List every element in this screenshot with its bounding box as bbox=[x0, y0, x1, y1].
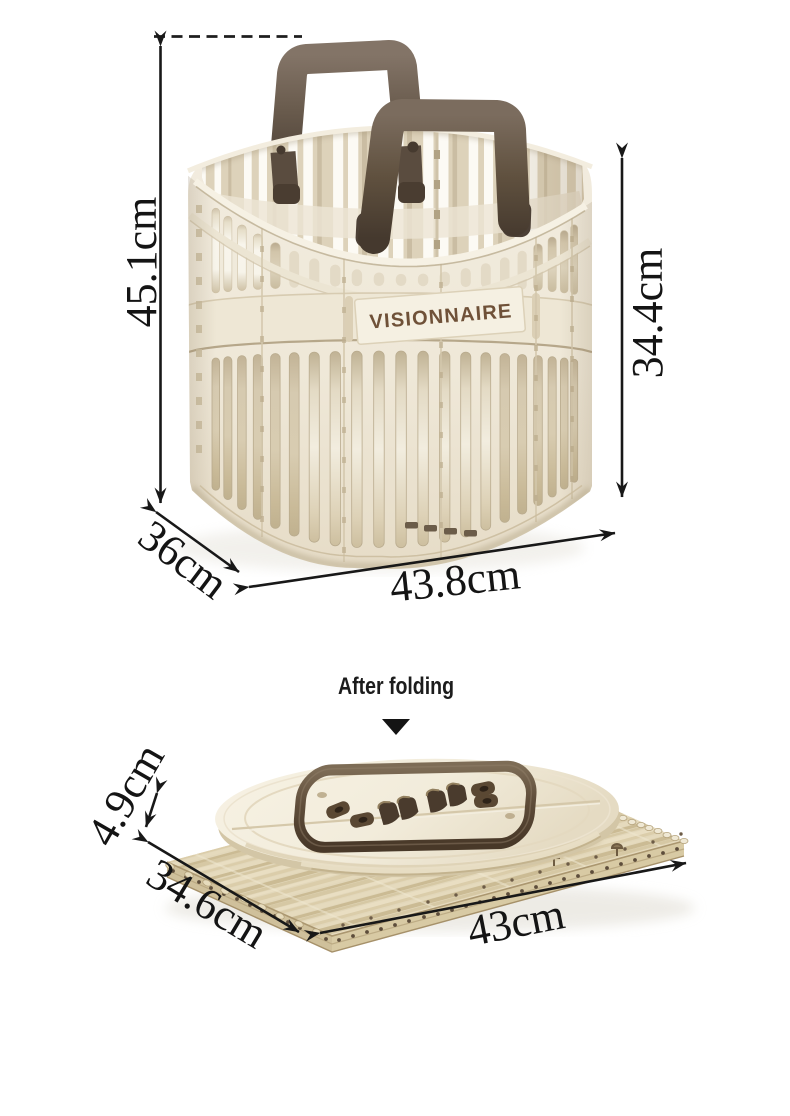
svg-text:45.1cm: 45.1cm bbox=[117, 197, 166, 328]
svg-text:34.4cm: 34.4cm bbox=[623, 248, 672, 379]
svg-text:After folding: After folding bbox=[338, 673, 454, 700]
